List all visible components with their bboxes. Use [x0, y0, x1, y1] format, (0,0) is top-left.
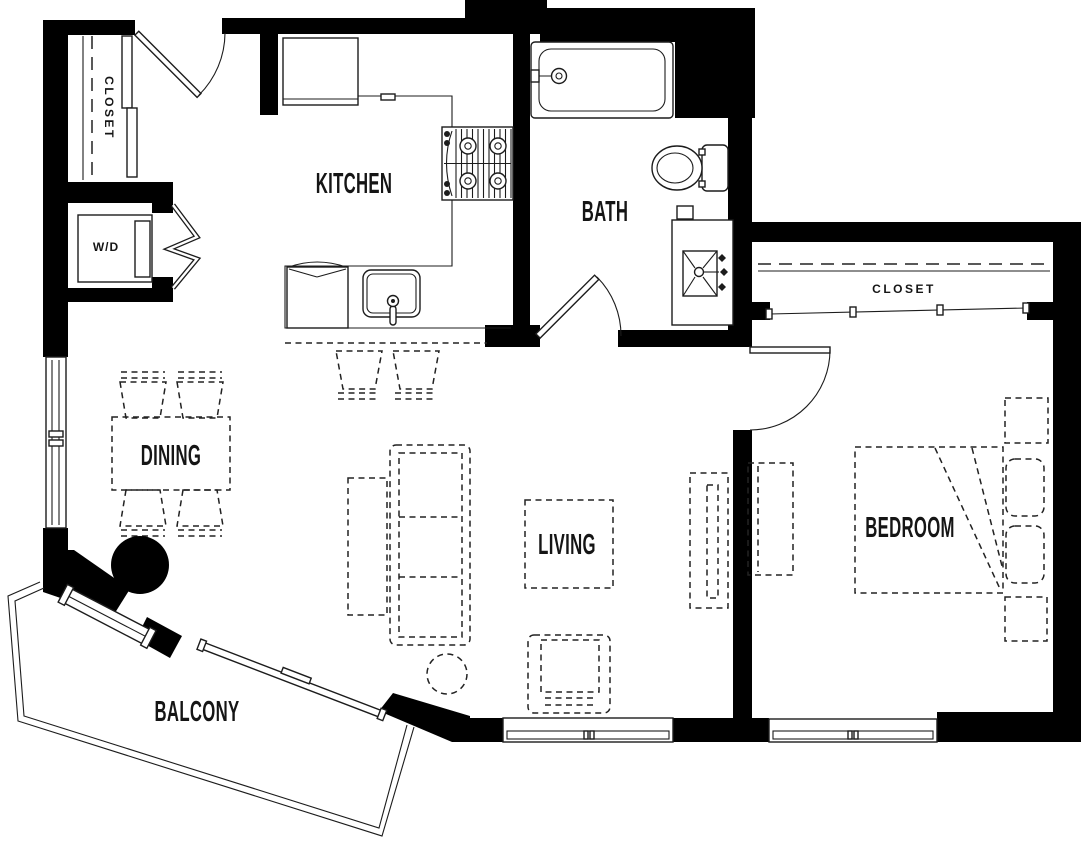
dining-chair-icon: [120, 372, 166, 418]
dishwasher-icon: [287, 262, 348, 328]
armchair-icon: [528, 635, 610, 713]
bar-stool-icon: [393, 351, 439, 399]
sliding-closet-door-icon: [127, 108, 137, 177]
dining-chair-icon: [177, 372, 223, 418]
sliding-closet-door-icon: [122, 36, 132, 108]
kitchen-fixtures: [283, 38, 513, 399]
column-icon: [111, 536, 169, 594]
living-furniture: [348, 445, 728, 713]
toilet-icon: [652, 145, 728, 191]
tv-console-icon: [690, 473, 728, 608]
bar-stool-icon: [336, 351, 382, 399]
kitchen-sink-icon: [363, 270, 420, 325]
room-label-bath: BATH: [582, 196, 628, 229]
room-label-balcony: BALCONY: [155, 696, 240, 729]
refrigerator-icon: [283, 38, 358, 105]
dining-chair-icon: [177, 490, 223, 536]
room-label-dining: DINING: [141, 440, 201, 473]
window-icon: [46, 357, 66, 528]
room-label-washer-dryer: W/D: [93, 240, 119, 254]
accent-table-icon: [427, 654, 467, 694]
console-table-icon: [348, 478, 387, 615]
nightstand-icon: [1005, 597, 1047, 641]
room-label-living: LIVING: [538, 529, 596, 562]
room-label-entry-closet: CLOSET: [102, 76, 116, 140]
pillow-icon: [1006, 459, 1044, 516]
window-icon: [503, 718, 673, 742]
room-label-bedroom: BEDROOM: [865, 512, 955, 545]
bathtub-icon: [531, 42, 673, 118]
dining-furniture: [111, 372, 230, 594]
range-icon: [442, 127, 513, 200]
nightstand-icon: [1005, 398, 1048, 443]
dresser-icon: [748, 463, 793, 575]
entry-door-icon: [135, 31, 225, 97]
room-label-kitchen: KITCHEN: [316, 168, 393, 201]
vanity-sink-icon: [672, 206, 733, 325]
bath-door-icon: [536, 275, 621, 338]
sofa-icon: [390, 445, 470, 645]
pillow-icon: [1006, 526, 1044, 583]
floor-plan: KITCHEN BATH DINING LIVING BEDROOM BALCO…: [0, 0, 1083, 844]
room-label-bedroom-closet: CLOSET: [872, 282, 936, 296]
sliding-closet-door-icon: [770, 308, 1027, 314]
dining-chair-icon: [120, 490, 166, 536]
window-icon: [769, 719, 937, 742]
bedroom-fixtures: [748, 264, 1050, 641]
bedroom-door-icon: [750, 347, 830, 430]
